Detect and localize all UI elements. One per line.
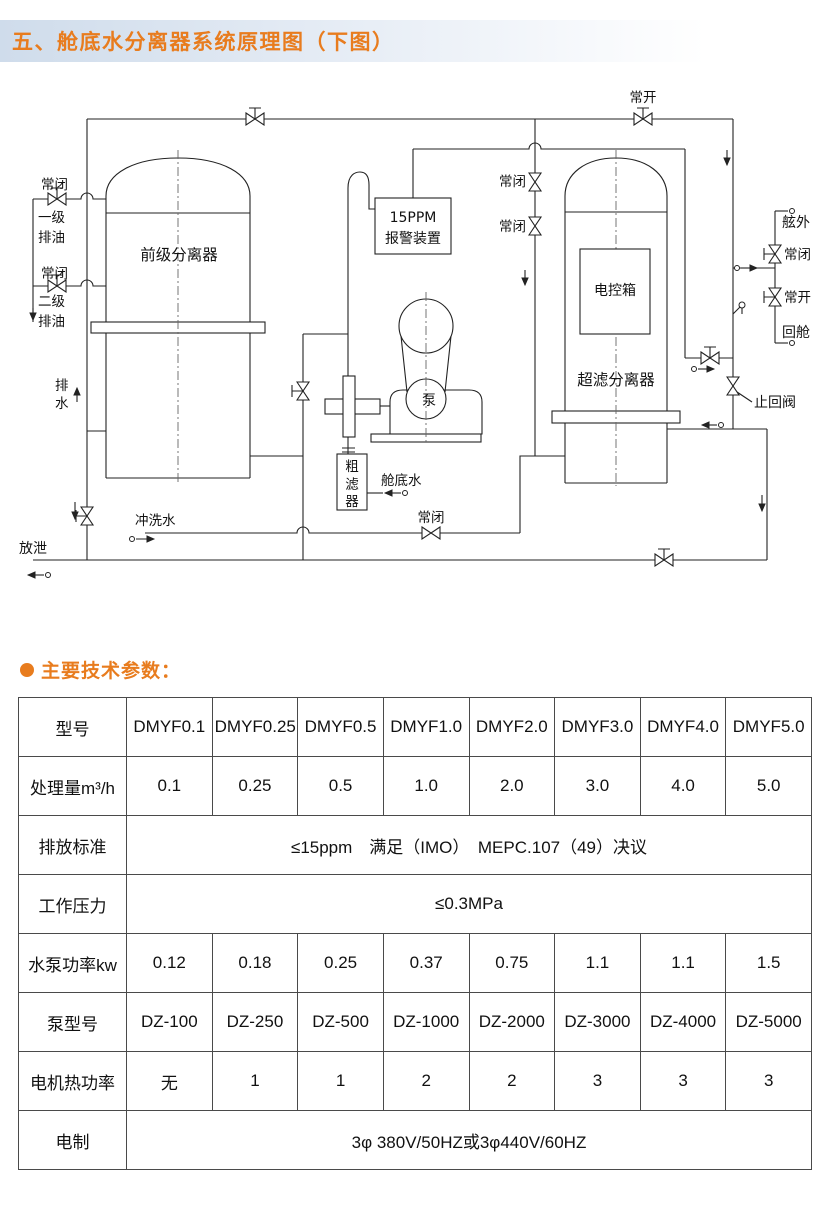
control-box-label: 电控箱: [594, 283, 636, 299]
spec-cell: DZ-3000: [555, 993, 641, 1052]
row-label: 工作压力: [19, 875, 127, 934]
bilge-water-label: 舱底水: [381, 473, 422, 489]
spec-cell: 0.5: [298, 757, 384, 816]
spec-cell: DZ-100: [127, 993, 213, 1052]
params-heading: 主要技术参数：: [20, 656, 830, 683]
oil2-label: 排油: [38, 314, 65, 330]
table-row: 排放标准 ≤15ppm 满足（IMO） MEPC.107（49）决议: [19, 816, 812, 875]
alarm-label: 报警装置: [385, 231, 441, 247]
bullet-icon: [20, 663, 34, 677]
spec-cell: 3: [555, 1052, 641, 1111]
check-valve-icon: [727, 377, 739, 395]
valve-icon: [634, 108, 652, 125]
spec-cell: 4.0: [640, 757, 726, 816]
spec-cell: 3: [726, 1052, 812, 1111]
pump-label: 泵: [422, 393, 436, 409]
alarm-device-box: 15PPM 报警装置: [375, 198, 451, 254]
table-row: 电机热功率 无 1 1 2 2 3 3 3: [19, 1052, 812, 1111]
spec-cell: 3φ 380V/50HZ或3φ440V/60HZ: [127, 1111, 812, 1170]
spec-cell: 1.5: [726, 934, 812, 993]
pre-separator-tank: 前级分离器: [91, 150, 265, 482]
row-label: 电机热功率: [19, 1052, 127, 1111]
spec-cell: 0.12: [127, 934, 213, 993]
row-label: 型号: [19, 698, 127, 757]
ultra-separator-label: 超滤分离器: [577, 371, 655, 389]
spec-cell: 1.1: [640, 934, 726, 993]
drain-water-label: 水: [55, 396, 69, 412]
specs-table: 型号 DMYF0.1 DMYF0.25 DMYF0.5 DMYF1.0 DMYF…: [18, 697, 812, 1170]
valve-icon: [529, 173, 541, 191]
vent-label: 放泄: [19, 541, 47, 557]
check-valve-label: 止回阀: [754, 395, 796, 411]
valve-icon: [764, 245, 781, 263]
table-row: 水泵功率kw 0.12 0.18 0.25 0.37 0.75 1.1 1.1 …: [19, 934, 812, 993]
outboard-label: 舷外: [782, 215, 810, 231]
valve-icon: [292, 382, 309, 400]
ultra-separator-tank: 电控箱 超滤分离器: [552, 150, 680, 486]
page-title: 五、舱底水分离器系统原理图（下图）: [12, 26, 395, 56]
spec-cell: 1: [212, 1052, 298, 1111]
valve-icon: [246, 108, 264, 125]
nc-label: 常闭: [499, 219, 526, 235]
spec-cell: DMYF5.0: [726, 698, 812, 757]
no-label: 常开: [630, 90, 657, 106]
spec-cell: DMYF1.0: [383, 698, 469, 757]
spec-cell: 2: [383, 1052, 469, 1111]
spec-cell: 2.0: [469, 757, 555, 816]
spec-cell: ≤15ppm 满足（IMO） MEPC.107（49）决议: [127, 816, 812, 875]
flush-water-label: 冲洗水: [135, 513, 176, 529]
spec-cell: DMYF0.25: [212, 698, 298, 757]
spec-cell: 1.0: [383, 757, 469, 816]
oil2-label: 二级: [38, 294, 65, 310]
row-label: 水泵功率kw: [19, 934, 127, 993]
spec-cell: 1: [298, 1052, 384, 1111]
coarse-filter-assembly: 粗 滤 器: [325, 376, 380, 510]
spec-cell: 0.25: [212, 757, 298, 816]
nc-label: 常闭: [41, 177, 68, 193]
section-title-bar: 五、舱底水分离器系统原理图（下图）: [0, 20, 830, 62]
spec-cell: DMYF3.0: [555, 698, 641, 757]
coarse-filter-label: 粗: [345, 459, 359, 475]
sample-cock-icon: [733, 302, 745, 314]
spec-cell: DZ-5000: [726, 993, 812, 1052]
valve-icon: [529, 217, 541, 235]
valve-icon: [764, 288, 781, 306]
spec-cell: 3: [640, 1052, 726, 1111]
spec-cell: 5.0: [726, 757, 812, 816]
table-row: 电制 3φ 380V/50HZ或3φ440V/60HZ: [19, 1111, 812, 1170]
table-row: 型号 DMYF0.1 DMYF0.25 DMYF0.5 DMYF1.0 DMYF…: [19, 698, 812, 757]
spec-cell: DMYF2.0: [469, 698, 555, 757]
spec-cell: 2: [469, 1052, 555, 1111]
system-diagram: 前级分离器 电控箱 超滤分离器 粗 滤 器 泵 15PPM 报警装置: [15, 86, 815, 616]
spec-cell: 1.1: [555, 934, 641, 993]
table-row: 处理量m³/h 0.1 0.25 0.5 1.0 2.0 3.0 4.0 5.0: [19, 757, 812, 816]
table-row: 泵型号 DZ-100 DZ-250 DZ-500 DZ-1000 DZ-2000…: [19, 993, 812, 1052]
valve-icon: [655, 549, 673, 566]
spec-cell: ≤0.3MPa: [127, 875, 812, 934]
nc-label: 常闭: [499, 174, 526, 190]
nc-label: 常闭: [784, 247, 811, 263]
spec-cell: DZ-4000: [640, 993, 726, 1052]
pump: 泵: [371, 292, 482, 444]
oil1-label: 一级: [38, 210, 65, 226]
spec-cell: 0.75: [469, 934, 555, 993]
valve-icon: [701, 347, 719, 364]
pre-separator-label: 前级分离器: [140, 246, 218, 264]
spec-cell: 0.25: [298, 934, 384, 993]
no-label: 常开: [784, 290, 811, 306]
nc-label: 常闭: [418, 510, 445, 526]
oil1-label: 排油: [38, 230, 65, 246]
row-label: 处理量m³/h: [19, 757, 127, 816]
valve-icon: [76, 507, 93, 525]
coarse-filter-label: 滤: [345, 477, 359, 493]
alarm-label: 15PPM: [390, 210, 437, 226]
spec-cell: 0.1: [127, 757, 213, 816]
drain-water-label: 排: [55, 378, 69, 394]
spec-cell: 0.37: [383, 934, 469, 993]
spec-cell: DZ-2000: [469, 993, 555, 1052]
spec-cell: 3.0: [555, 757, 641, 816]
row-label: 电制: [19, 1111, 127, 1170]
spec-cell: 无: [127, 1052, 213, 1111]
coarse-filter-label: 器: [345, 494, 359, 510]
nc-label: 常闭: [41, 266, 68, 282]
spec-cell: DMYF0.5: [298, 698, 384, 757]
table-row: 工作压力 ≤0.3MPa: [19, 875, 812, 934]
spec-cell: DZ-500: [298, 993, 384, 1052]
spec-cell: DZ-1000: [383, 993, 469, 1052]
spec-cell: DMYF4.0: [640, 698, 726, 757]
params-heading-text: 主要技术参数：: [41, 656, 181, 683]
spec-cell: 0.18: [212, 934, 298, 993]
spec-cell: DZ-250: [212, 993, 298, 1052]
row-label: 泵型号: [19, 993, 127, 1052]
valve-icon: [422, 527, 440, 539]
spec-cell: DMYF0.1: [127, 698, 213, 757]
return-cabin-label: 回舱: [782, 325, 810, 341]
row-label: 排放标准: [19, 816, 127, 875]
